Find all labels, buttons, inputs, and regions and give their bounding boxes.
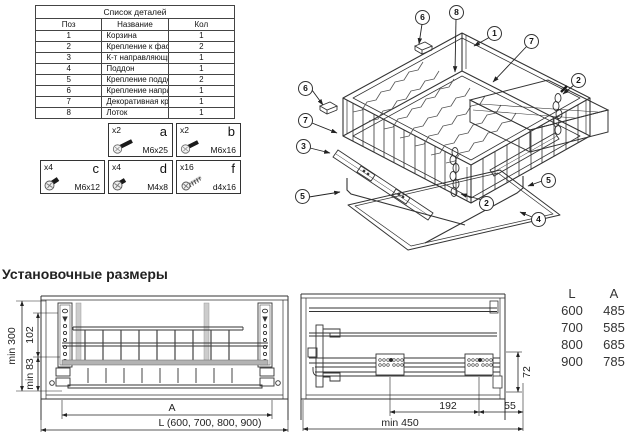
slide-rail-side [309,354,502,388]
callout-4: 4 [531,212,546,227]
dim-block-spacing: 192 [439,400,457,412]
callout-5: 5 [295,189,310,204]
section-heading: Установочные размеры [2,266,168,282]
mount-bracket-left [50,303,72,386]
cell-pos: 7 [36,97,102,108]
size-l: 800 [551,336,593,353]
callout-5: 5 [541,173,556,188]
table-row: 4Поддон1 [36,64,235,75]
basket-front-view [62,303,268,388]
table-row: 3К-т направляющих 450 мм1 [36,53,235,64]
callout-7: 7 [524,34,539,49]
size-col-l: L [551,285,593,302]
size-a: 585 [593,319,635,336]
size-l: 600 [551,302,593,319]
cell-pos: 2 [36,42,102,53]
table-row: 5Крепление поддона2 [36,75,235,86]
dim-depth-min: min 450 [381,417,418,429]
dim-width-l: L (600, 700, 800, 900) [159,417,262,429]
basket-side-view [309,308,497,336]
table-row: 7Декоративная крышка1 [36,97,235,108]
size-a: 685 [593,336,635,353]
cell-pos: 6 [36,86,102,97]
cell-qty: 1 [168,97,234,108]
cell-pos: 8 [36,108,102,119]
callout-6: 6 [298,81,313,96]
cell-name: Декоративная крышка [102,97,168,108]
cell-name: Крепление направляющей [102,86,168,97]
front-view-drawing [0,288,300,432]
size-l: 900 [551,353,593,370]
front-view-dimension-lines [16,301,288,432]
cell-name: Лоток [102,108,168,119]
tapping-screw-icon [179,173,207,192]
cell-name: Корзина [102,31,168,42]
size-row: 900785 [551,353,635,370]
size-a: 785 [593,353,635,370]
size-a: 485 [593,302,635,319]
cell-qty: 2 [168,75,234,86]
size-row: 700585 [551,319,635,336]
cell-qty: 1 [168,64,234,75]
cell-name: Крепление поддона [102,75,168,86]
cell-name: Крепление к фасаду [102,42,168,53]
pan-screw-icon [43,175,65,192]
cell-qty: 1 [168,108,234,119]
slide-rail [333,150,433,220]
fastener-letter: c [93,161,100,176]
fastener-box-b: x2 b M6x16 [176,123,241,157]
table-row: 8Лоток1 [36,108,235,119]
col-header-pos: Поз [36,19,102,31]
callout-2: 2 [479,196,494,211]
fastener-size: M6x12 [74,182,100,192]
cell-qty: 2 [168,42,234,53]
fastener-box-d: x4 d M4x8 [108,160,173,194]
fastener-count: x2 [180,125,189,135]
col-header-name: Название [102,19,168,31]
size-row: 800685 [551,336,635,353]
rail-clip-top [415,42,432,54]
cell-qty: 1 [168,53,234,64]
size-row: 600485 [551,302,635,319]
fastener-box-a: x2 a M6x25 [108,123,173,157]
right-rail [490,133,559,176]
size-table: L A 600485 700585 800685 900785 [551,285,635,370]
callout-1: 1 [487,26,502,41]
dim-width-a: A [168,402,175,414]
parts-table: Список деталей Поз Название Кол 1Корзина… [35,5,235,119]
fastener-size: d4x16 [213,182,236,192]
table-row: 1Корзина1 [36,31,235,42]
cell-pos: 1 [36,31,102,42]
fastener-size: M6x16 [210,145,236,155]
bolt-icon [111,138,137,155]
tray [348,170,560,250]
fastener-letter: b [228,124,235,139]
cell-name: К-т направляющих 450 мм [102,53,168,64]
chain-right [553,86,567,135]
fastener-count: x4 [44,162,53,172]
callout-2: 2 [571,73,586,88]
table-row: 2Крепление к фасаду2 [36,42,235,53]
exploded-view-drawing [295,0,640,265]
dim-rail-height: 72 [521,366,533,378]
fastener-size: M6x25 [142,145,168,155]
callout-7: 7 [298,113,313,128]
fastener-box-c: x4 c M6x12 [40,160,105,194]
cell-pos: 3 [36,53,102,64]
cell-pos: 5 [36,75,102,86]
size-col-a: A [593,285,635,302]
pan-screw-icon [111,175,133,192]
dim-lower-span: min 83 [24,358,36,390]
cell-pos: 4 [36,64,102,75]
fastener-letter: f [231,161,235,176]
cell-name: Поддон [102,64,168,75]
fastener-count: x16 [180,162,194,172]
fastener-count: x4 [112,162,121,172]
mount-bracket-right [258,303,280,386]
size-l: 700 [551,319,593,336]
callout-3: 3 [296,139,311,154]
callout-8: 8 [449,5,464,20]
dim-front-offset: 55 [504,400,516,412]
facade-bracket-side [308,325,340,387]
fastener-count: x2 [112,125,121,135]
fastener-size: M4x8 [147,182,168,192]
instruction-sheet: Список деталей Поз Название Кол 1Корзина… [0,0,640,432]
bolt-icon [179,138,205,155]
dim-upper-span: 102 [24,326,36,344]
dim-height-min: min 300 [6,327,18,364]
col-header-qty: Кол [168,19,234,31]
fastener-box-f: x16 f d4x16 [176,160,241,194]
table-row: 6Крепление направляющей1 [36,86,235,97]
callout-6: 6 [415,10,430,25]
parts-table-title: Список деталей [36,6,235,19]
cell-qty: 1 [168,31,234,42]
cell-qty: 1 [168,86,234,97]
fastener-letter: a [160,124,167,139]
fastener-letter: d [160,161,167,176]
